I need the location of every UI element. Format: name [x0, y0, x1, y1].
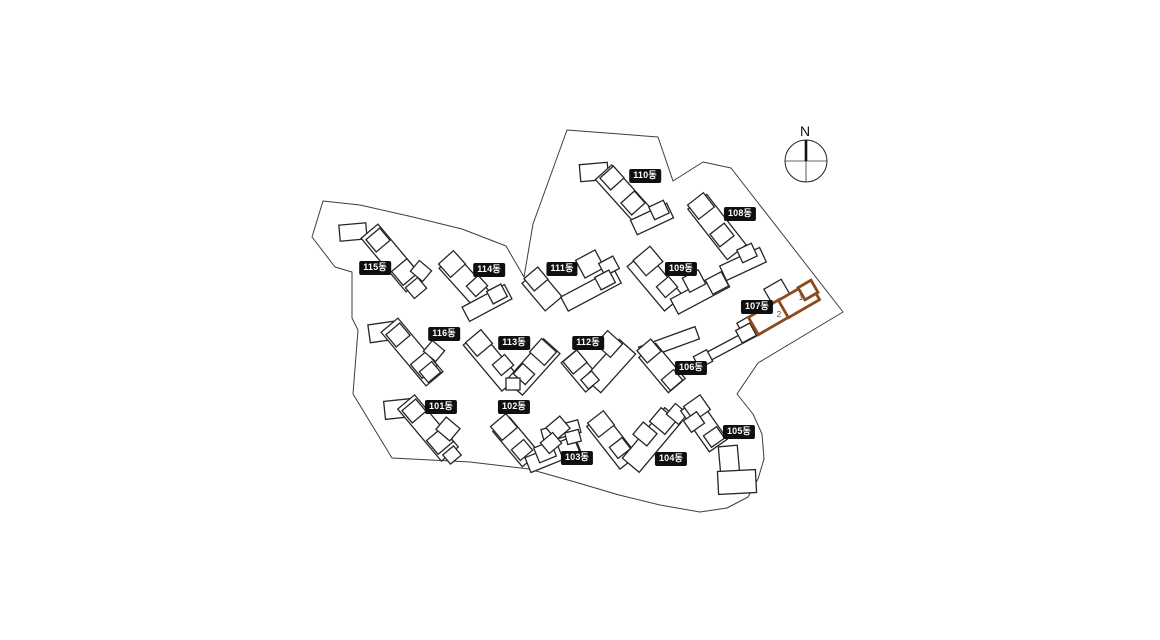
building-label-111[interactable]: 111동	[546, 262, 577, 276]
site-plan-svg: 12 N	[0, 0, 1160, 640]
building-footprint-part	[717, 470, 756, 495]
site-map: 12 N 101동102동103동104동105동106동107동108동109…	[0, 0, 1160, 640]
building-111[interactable]	[522, 250, 621, 311]
building-105[interactable]	[681, 395, 757, 495]
building-footprint-part	[506, 378, 520, 390]
building-label-101[interactable]: 101동	[425, 400, 457, 414]
building-label-107[interactable]: 107동	[741, 300, 773, 314]
building-114[interactable]	[439, 251, 512, 322]
building-label-116[interactable]: 116동	[428, 327, 460, 341]
building-label-102[interactable]: 102동	[498, 400, 530, 414]
building-109[interactable]	[627, 246, 729, 314]
building-label-112[interactable]: 112동	[572, 336, 604, 350]
compass: N	[785, 123, 827, 182]
unit-line-label-2[interactable]: 2	[777, 310, 782, 319]
compass-north-label: N	[800, 123, 810, 139]
building-footprint-part	[565, 429, 582, 444]
building-label-115[interactable]: 115동	[359, 261, 391, 275]
building-label-110[interactable]: 110동	[629, 169, 661, 183]
building-label-105[interactable]: 105동	[723, 425, 755, 439]
building-label-103[interactable]: 103동	[561, 451, 593, 465]
building-label-114[interactable]: 114동	[473, 263, 505, 277]
building-108[interactable]	[688, 193, 767, 281]
building-label-106[interactable]: 106동	[675, 361, 707, 375]
building-106[interactable]	[637, 327, 699, 393]
building-label-109[interactable]: 109동	[665, 262, 697, 276]
building-label-104[interactable]: 104동	[655, 452, 687, 466]
building-label-113[interactable]: 113동	[498, 336, 530, 350]
unit-line-label-1[interactable]: 1	[799, 293, 804, 302]
building-label-108[interactable]: 108동	[724, 207, 756, 221]
